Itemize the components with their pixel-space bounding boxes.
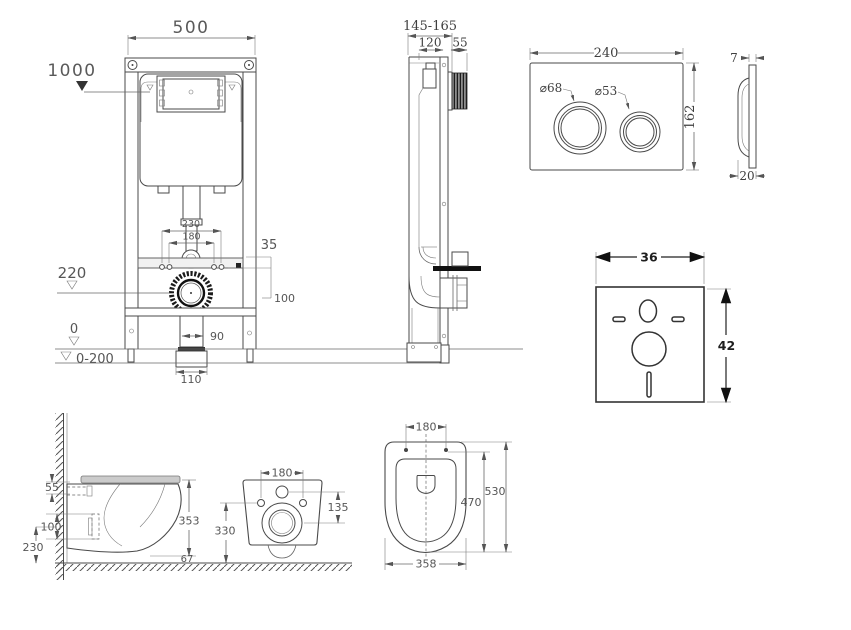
insulation-mat-view: 36 42 [596, 250, 735, 403]
level-0-dim: 0 [70, 322, 78, 337]
inner-length-470-dim: 470 [461, 496, 482, 509]
level-marker-220 [67, 281, 77, 289]
flush-plate [530, 63, 683, 170]
toilet-bowl-side [67, 484, 181, 552]
plate-thickness-dim: 7 [730, 51, 738, 65]
plate-width-dim: 240 [594, 46, 619, 61]
support-bar-side [433, 266, 481, 271]
inlet-drain-135-dim: 135 [328, 501, 349, 514]
right-leg-foot [247, 349, 253, 362]
toilet-rear-view: 180 135 330 [215, 467, 349, 564]
drain-width-90-dim: 90 [210, 330, 224, 343]
fill-valve [423, 63, 436, 88]
plate-height-dim: 162 [683, 105, 698, 130]
level-220-dim: 220 [58, 264, 87, 282]
toilet-side-view: 55 100 230 353 67 [23, 413, 200, 580]
lower-crossbar [125, 308, 256, 316]
drain-elbow-side [409, 276, 440, 343]
rail-foot-side [441, 345, 449, 363]
bolt-span-230-dim: 230 [182, 219, 200, 230]
outer-length-530-dim: 530 [485, 485, 506, 498]
drain-height-230-dim: 230 [23, 541, 44, 554]
support-bar [138, 258, 243, 269]
large-button-diameter: ⌀68 [540, 81, 563, 95]
bolt-span-180-top-dim: 180 [416, 421, 437, 434]
frame-depth-120-dim: 120 [419, 36, 442, 50]
seat-height-55-dim: 55 [45, 481, 59, 494]
flush-bend-side [419, 247, 436, 264]
floor-hatch [55, 564, 352, 571]
frame-top-bar [125, 58, 256, 72]
insulation-mat [596, 287, 704, 402]
toilet-top-view: 180 470 530 358 [385, 421, 512, 571]
bolt-dot-left-top [404, 448, 408, 452]
bolt-span-180-dim: 180 [182, 232, 200, 243]
flush-plate-side-view: 7 20 [729, 51, 765, 183]
flush-plate-front-view: 240 162 ⌀68 ⌀53 [530, 46, 699, 170]
cistern-tank [140, 74, 242, 193]
drain-connector-side [440, 275, 467, 311]
bracket-depth-55-dim: 55 [452, 36, 467, 50]
frame-drain-foot [176, 316, 207, 367]
width-358-dim: 358 [416, 558, 437, 571]
level-marker-1000 [76, 81, 88, 91]
drain-outlet [172, 274, 211, 313]
plate-side-profile [749, 65, 756, 168]
plate-depth-dim: 20 [739, 169, 754, 183]
left-leg-foot [128, 349, 134, 362]
bolt-dot-right-top [444, 448, 448, 452]
drain-offset-100-dim: 100 [274, 292, 295, 305]
foot-width-110-dim: 110 [181, 373, 202, 386]
wall-bracket [448, 72, 467, 110]
bar-offset-35-dim: 35 [261, 238, 278, 253]
installation-drawing-page: 500 1000 230 180 35 100 220 90 [0, 0, 851, 630]
bolt-height-330-dim: 330 [215, 525, 236, 538]
level-marker-0 [69, 337, 79, 345]
frame-rail-side [440, 57, 448, 363]
depth-range-dim: 145-165 [403, 19, 457, 34]
bowl-bump-rear [268, 545, 296, 558]
bowl-height-353-dim: 353 [179, 515, 200, 528]
seat-lid-side [81, 476, 180, 483]
wall-hatch [56, 413, 64, 580]
install-height-dim: 1000 [47, 61, 96, 81]
technical-drawing: 500 1000 230 180 35 100 220 90 [0, 0, 851, 630]
flush-plate-side-dims: 7 20 [729, 51, 765, 183]
bolt-span-180-rear-dim: 180 [272, 467, 293, 480]
level-range-dim: 0-200 [76, 352, 114, 367]
level-marker-range [61, 352, 71, 360]
frame-side-view: 145-165 120 55 [403, 19, 481, 363]
tank-profile [419, 88, 423, 247]
frame-front-dims: 500 1000 230 180 35 100 220 90 [47, 18, 295, 386]
small-button-diameter: ⌀53 [595, 84, 618, 98]
mat-height-dim: 42 [718, 338, 735, 353]
mat-width-dim: 36 [640, 250, 658, 265]
frame-width-dim: 500 [173, 18, 210, 38]
fixing-bolt-block [452, 252, 468, 266]
